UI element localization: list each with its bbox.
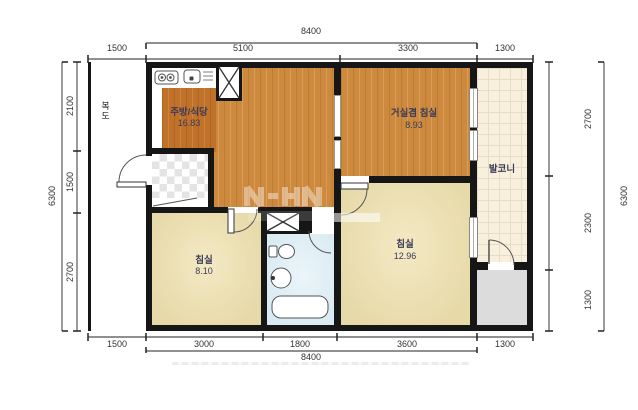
dim-bottom-3: 1800: [290, 339, 310, 349]
dim-top-1: 1500: [107, 43, 127, 53]
dim-bottom-4: 3600: [397, 339, 417, 349]
bedroom1-door-opening: [228, 207, 258, 213]
dim-top-4: 1300: [495, 43, 515, 53]
balcony-label: 발코니: [489, 161, 515, 175]
wall-outer-left: [146, 62, 152, 331]
wall-entrance-right: [208, 148, 214, 213]
living-window-lower: [469, 130, 478, 161]
sliding-door-panel-lower: [334, 140, 341, 169]
illegible-watermark-line: [172, 362, 470, 365]
bedroom2-area: 12.96: [394, 251, 417, 261]
dim-top-3: 3300: [398, 43, 418, 53]
dim-left-2: 1500: [65, 172, 75, 192]
utility-room-floor: [477, 270, 527, 325]
dim-right-total: 6300: [619, 186, 629, 206]
dim-right-2: 2300: [583, 213, 593, 233]
kitchen-counter: [152, 68, 217, 88]
entrance-door-opening: [146, 156, 152, 185]
bedroom2-window: [469, 217, 478, 258]
bedroom2-door-opening: [341, 176, 369, 183]
dim-right-1: 2700: [583, 109, 593, 129]
wall-corridor-line: [88, 62, 91, 331]
entrance-floor: [152, 154, 208, 198]
kitchen-counter-side: [152, 88, 162, 152]
dim-left-3: 2700: [65, 262, 75, 282]
bathroom-floor: [267, 234, 334, 325]
shaft-x-icon-center: [264, 210, 302, 234]
kitchen-area: 16.83: [178, 118, 201, 128]
living-window-upper: [469, 88, 478, 128]
dim-left-1: 2100: [65, 96, 75, 116]
wall-entrance-top: [146, 148, 214, 154]
dim-bottom-total: 8400: [301, 352, 321, 362]
bedroom1-area: 8.10: [195, 266, 213, 276]
bathroom-vestibule: [312, 207, 334, 234]
dim-bottom-1: 1500: [107, 339, 127, 349]
living-label: 거실겸 침실: [391, 105, 437, 119]
shaft-x-icon-top: [216, 64, 242, 101]
dim-bottom-5: 1300: [495, 339, 515, 349]
floor-plan-canvas: 8400 1500 5100 3300 1300 1500 3000 1800 …: [0, 0, 638, 410]
sliding-door-panel-upper: [334, 95, 341, 137]
balcony-door-opening: [488, 262, 514, 270]
dim-right-3: 1300: [583, 290, 593, 310]
dim-top-total: 8400: [301, 26, 321, 36]
dim-left-total: 6300: [47, 186, 57, 206]
entrance-step: [152, 198, 208, 207]
kitchen-label: 주방/식당: [170, 104, 208, 118]
dim-top-2: 5100: [233, 43, 253, 53]
wall-outer-right: [527, 62, 533, 331]
living-area: 8.93: [405, 120, 423, 130]
dim-bottom-2: 3000: [194, 339, 214, 349]
corridor-label: 복도: [99, 101, 112, 121]
bedroom2-label: 침실: [396, 236, 413, 250]
bedroom1-label: 침실: [195, 252, 212, 266]
